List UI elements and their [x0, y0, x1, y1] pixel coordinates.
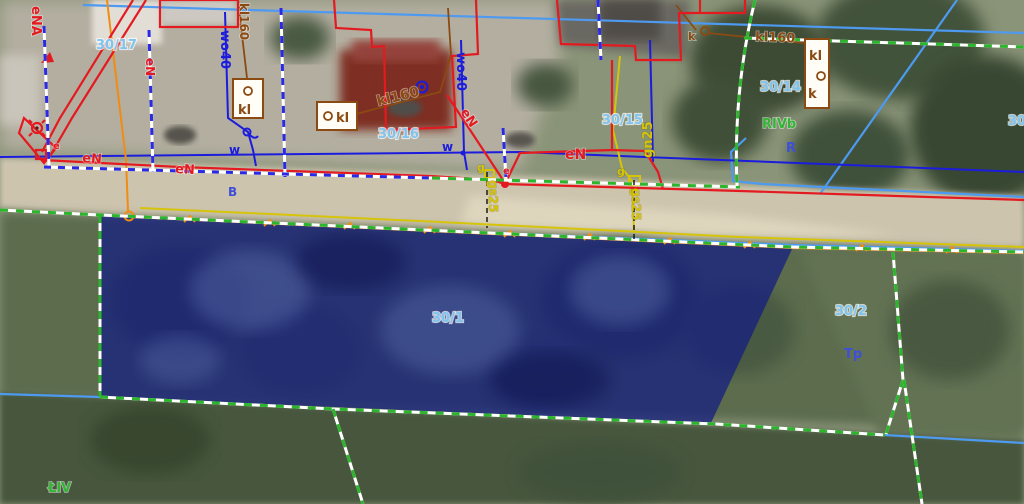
land-class-label-rivb: RIVb — [762, 117, 796, 132]
power-station-icon — [29, 120, 45, 136]
water-label-wo40-left: wo40 — [217, 30, 232, 69]
power-label-e-1: e — [53, 141, 60, 152]
power-label-e-2: e — [503, 166, 510, 177]
parcel-label-30-1: 30/1 — [432, 311, 464, 326]
parcel-label-30-17: 30/17 — [96, 38, 137, 53]
parcel-label-30-15: 30/15 — [602, 113, 643, 128]
sewer-label-kl160-top: kl160 — [237, 3, 251, 40]
water-label-w-mid: w — [442, 140, 453, 154]
water-label-wo40-mid: wo40 — [453, 52, 468, 91]
sewer-label-kl160-right: kl160 — [755, 30, 796, 46]
land-class-label-liv: ŁIV — [47, 481, 71, 496]
sewer-box-label: kl — [809, 49, 822, 64]
parcel-label-30-16: 30/16 — [378, 127, 419, 142]
gas-label-gs25-2: gs25 — [629, 188, 643, 220]
gas-label-g-1: g — [477, 161, 485, 174]
power-label-en-road-3: eN — [565, 147, 586, 163]
land-class-label-r: R — [786, 141, 796, 156]
power-label-en-road-1: eN — [82, 151, 103, 167]
water-label-w-left: w — [229, 143, 240, 157]
map-canvas[interactable]: kl kl kl k eNA 30/17 eN wo40 kl160 kl160… — [0, 0, 1024, 504]
sewer-box-label: kl — [336, 111, 349, 126]
parcel-label-30-14: 30/14 — [760, 80, 801, 95]
map-viewport[interactable]: kl kl kl k eNA 30/17 eN wo40 kl160 kl160… — [0, 0, 1024, 504]
gas-label-gs25-1: gs25 — [486, 180, 500, 212]
sewer-box-label: kl — [238, 103, 251, 118]
power-label-en-road-2: eN — [175, 162, 195, 178]
parcel-label-30-edge: 30 — [1008, 114, 1024, 129]
land-class-label-b: B — [228, 185, 237, 199]
sewer-label-k: k — [688, 30, 696, 43]
water-node-dot — [461, 151, 466, 156]
gas-label-g-2: g — [617, 165, 625, 178]
land-class-label-tp: Tp — [844, 347, 862, 362]
power-label-en-vertical: eN — [143, 58, 157, 76]
parcel-label-30-2: 30/2 — [835, 304, 867, 319]
power-label-ena: eNA — [28, 6, 43, 36]
sewer-box-label: k — [808, 87, 817, 102]
gas-label-gn25: gn25 — [641, 121, 656, 158]
